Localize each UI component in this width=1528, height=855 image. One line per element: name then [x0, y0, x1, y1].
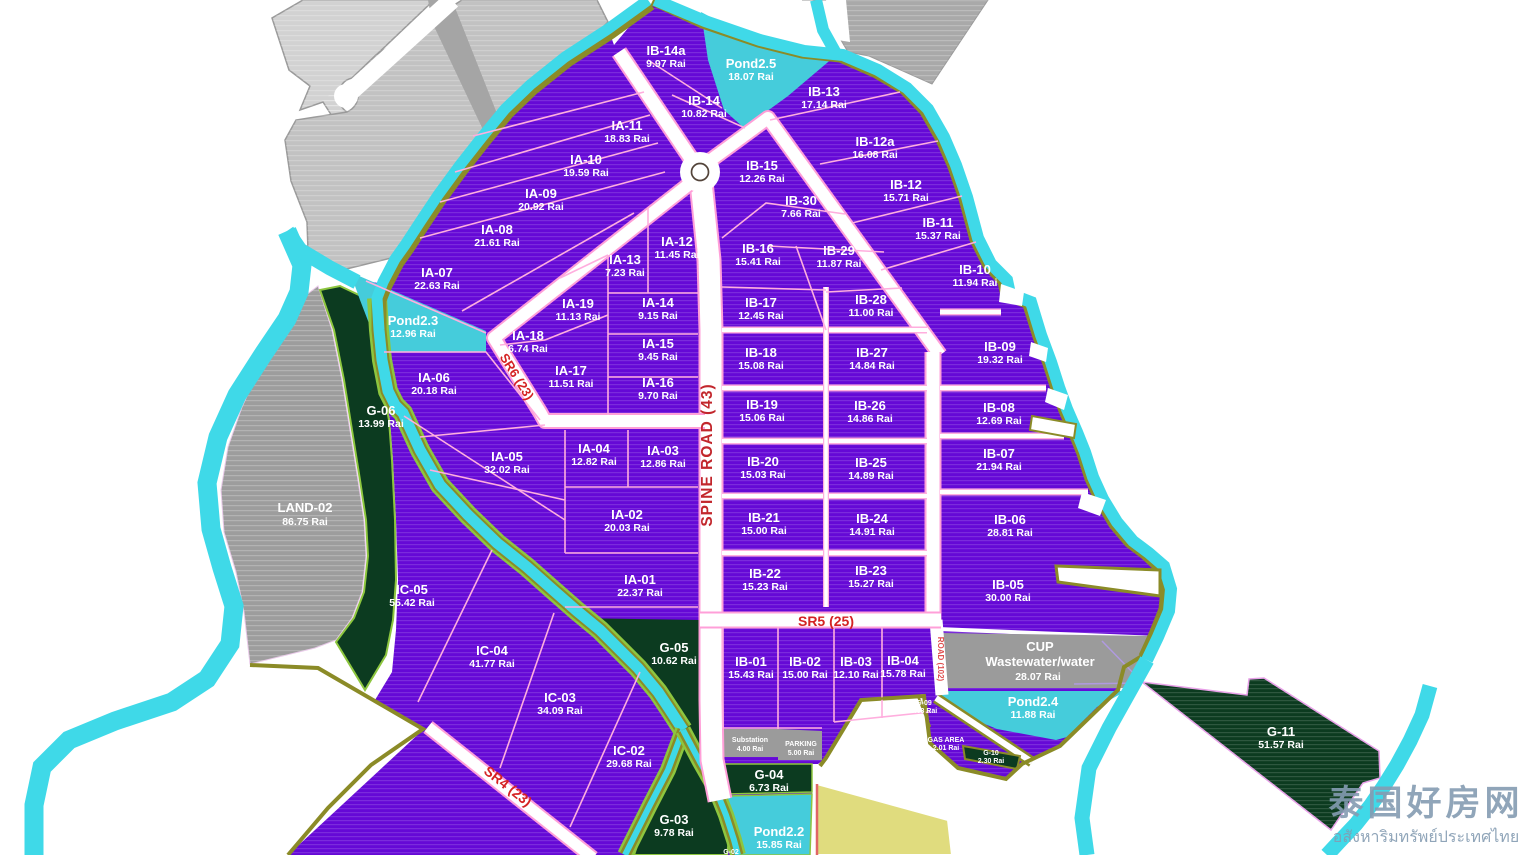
- svg-text:12.45 Rai: 12.45 Rai: [738, 310, 784, 322]
- svg-text:G-11: G-11: [1267, 724, 1295, 739]
- svg-text:IA-03: IA-03: [647, 443, 679, 458]
- svg-text:9.70 Rai: 9.70 Rai: [638, 390, 678, 402]
- svg-text:IA-06: IA-06: [418, 370, 450, 385]
- svg-text:2.30 Rai: 2.30 Rai: [978, 758, 1005, 765]
- svg-text:22.37 Rai: 22.37 Rai: [617, 587, 663, 599]
- svg-text:51.57 Rai: 51.57 Rai: [1258, 739, 1304, 751]
- svg-text:IA-04: IA-04: [578, 441, 611, 456]
- svg-text:41.77 Rai: 41.77 Rai: [469, 658, 515, 670]
- svg-text:15.00 Rai: 15.00 Rai: [741, 525, 787, 537]
- svg-text:5.00 Rai: 5.00 Rai: [788, 750, 815, 757]
- svg-text:IB-17: IB-17: [745, 295, 777, 310]
- svg-text:IA-13: IA-13: [609, 252, 641, 267]
- svg-text:IB-06: IB-06: [994, 512, 1026, 527]
- svg-text:Pond2.4: Pond2.4: [1008, 694, 1059, 709]
- svg-text:15.37 Rai: 15.37 Rai: [915, 230, 961, 242]
- svg-text:Substation: Substation: [732, 737, 768, 744]
- svg-text:G-04: G-04: [755, 767, 785, 782]
- svg-text:14.84 Rai: 14.84 Rai: [849, 360, 895, 372]
- svg-text:13.99 Rai: 13.99 Rai: [358, 418, 404, 430]
- svg-text:20.92 Rai: 20.92 Rai: [518, 201, 564, 213]
- svg-text:Pond2.3: Pond2.3: [388, 313, 439, 328]
- svg-text:86.75 Rai: 86.75 Rai: [282, 516, 328, 528]
- svg-text:IB-15: IB-15: [746, 158, 778, 173]
- svg-text:IA-11: IA-11: [611, 118, 642, 133]
- svg-text:15.08 Rai: 15.08 Rai: [738, 360, 784, 372]
- svg-text:IB-22: IB-22: [749, 566, 781, 581]
- svg-text:IB-07: IB-07: [983, 446, 1015, 461]
- svg-text:IB-01: IB-01: [735, 654, 767, 669]
- svg-text:IB-16: IB-16: [742, 241, 774, 256]
- svg-text:IB-25: IB-25: [855, 455, 887, 470]
- svg-text:32.02 Rai: 32.02 Rai: [484, 464, 530, 476]
- svg-text:28.81 Rai: 28.81 Rai: [987, 527, 1033, 539]
- svg-text:15.03 Rai: 15.03 Rai: [740, 469, 786, 481]
- svg-text:19.59 Rai: 19.59 Rai: [563, 167, 609, 179]
- svg-text:IC-04: IC-04: [476, 643, 509, 658]
- svg-text:IB-10: IB-10: [959, 262, 991, 277]
- svg-text:11.45 Rai: 11.45 Rai: [655, 249, 700, 261]
- svg-text:ROAD (102): ROAD (102): [936, 637, 945, 682]
- svg-text:IB-28: IB-28: [855, 292, 887, 307]
- svg-text:12.10 Rai: 12.10 Rai: [833, 669, 879, 681]
- svg-text:18.83 Rai: 18.83 Rai: [604, 133, 650, 145]
- svg-text:IA-10: IA-10: [570, 152, 602, 167]
- svg-text:IB-04: IB-04: [887, 653, 920, 668]
- svg-text:Pond2.5: Pond2.5: [726, 56, 777, 71]
- svg-text:CUP: CUP: [1026, 639, 1054, 654]
- svg-text:6.73 Rai: 6.73 Rai: [749, 782, 789, 794]
- svg-text:21.61 Rai: 21.61 Rai: [474, 237, 520, 249]
- svg-text:12.86 Rai: 12.86 Rai: [640, 458, 686, 470]
- svg-text:11.94 Rai: 11.94 Rai: [953, 277, 998, 289]
- svg-text:IA-01: IA-01: [624, 572, 656, 587]
- svg-text:IB-12: IB-12: [890, 177, 922, 192]
- svg-text:14.91 Rai: 14.91 Rai: [849, 526, 895, 538]
- svg-text:IB-12a: IB-12a: [855, 134, 895, 149]
- svg-text:29.68 Rai: 29.68 Rai: [606, 758, 652, 770]
- svg-text:IB-18: IB-18: [745, 345, 777, 360]
- svg-text:IB-11: IB-11: [922, 215, 953, 230]
- svg-text:7.66 Rai: 7.66 Rai: [781, 208, 821, 220]
- svg-text:16.08 Rai: 16.08 Rai: [852, 149, 898, 161]
- svg-text:34.09 Rai: 34.09 Rai: [537, 705, 583, 717]
- svg-text:15.71 Rai: 15.71 Rai: [883, 192, 929, 204]
- svg-text:12.69 Rai: 12.69 Rai: [976, 415, 1022, 427]
- svg-text:21.94 Rai: 21.94 Rai: [976, 461, 1022, 473]
- svg-text:泰国好房网: 泰国好房网: [1328, 784, 1523, 823]
- svg-text:12.82 Rai: 12.82 Rai: [571, 456, 617, 468]
- svg-text:11.00 Rai: 11.00 Rai: [849, 307, 894, 319]
- svg-text:IB-20: IB-20: [747, 454, 779, 469]
- svg-text:IB-13: IB-13: [808, 84, 840, 99]
- svg-text:20.18 Rai: 20.18 Rai: [411, 385, 457, 397]
- svg-text:G-09: G-09: [916, 700, 932, 707]
- svg-text:15.06 Rai: 15.06 Rai: [739, 412, 785, 424]
- svg-text:IB-09: IB-09: [984, 339, 1016, 354]
- svg-text:G-05: G-05: [660, 640, 689, 655]
- svg-text:IA-16: IA-16: [642, 375, 674, 390]
- svg-text:9.78 Rai: 9.78 Rai: [654, 827, 694, 839]
- svg-text:IA-18: IA-18: [512, 328, 544, 343]
- svg-text:20.03 Rai: 20.03 Rai: [604, 522, 650, 534]
- svg-text:9.97 Rai: 9.97 Rai: [646, 58, 686, 70]
- svg-text:Wastewater/water: Wastewater/water: [985, 654, 1094, 669]
- svg-text:IA-15: IA-15: [642, 336, 674, 351]
- svg-text:G-10: G-10: [983, 750, 999, 757]
- svg-text:IB-26: IB-26: [854, 398, 886, 413]
- svg-text:IA-05: IA-05: [491, 449, 523, 464]
- svg-text:IB-14: IB-14: [688, 93, 721, 108]
- svg-text:12.26 Rai: 12.26 Rai: [739, 173, 785, 185]
- svg-text:IB-03: IB-03: [840, 654, 872, 669]
- svg-text:IA-14: IA-14: [642, 295, 675, 310]
- svg-text:14.89 Rai: 14.89 Rai: [848, 470, 894, 482]
- svg-text:15.27 Rai: 15.27 Rai: [848, 578, 894, 590]
- svg-text:IC-03: IC-03: [544, 690, 576, 705]
- svg-text:10.62 Rai: 10.62 Rai: [651, 655, 697, 667]
- svg-text:15.78 Rai: 15.78 Rai: [880, 668, 926, 680]
- svg-text:G-06: G-06: [367, 403, 396, 418]
- svg-text:PARKING: PARKING: [785, 741, 817, 748]
- svg-text:19.32 Rai: 19.32 Rai: [977, 354, 1023, 366]
- svg-text:28.07 Rai: 28.07 Rai: [1015, 671, 1061, 683]
- svg-text:IB-23: IB-23: [855, 563, 887, 578]
- svg-text:IC-02: IC-02: [613, 743, 645, 758]
- svg-text:12.96 Rai: 12.96 Rai: [390, 328, 436, 340]
- svg-text:11.51 Rai: 11.51 Rai: [549, 378, 594, 390]
- svg-text:อสังหาริมทรัพย์ประเทศไทย: อสังหาริมทรัพย์ประเทศไทย: [1333, 827, 1519, 846]
- svg-text:18.07 Rai: 18.07 Rai: [728, 71, 774, 83]
- svg-text:30.00 Rai: 30.00 Rai: [985, 592, 1031, 604]
- svg-text:11.87 Rai: 11.87 Rai: [817, 258, 862, 270]
- svg-text:IB-21: IB-21: [748, 510, 780, 525]
- svg-text:IB-05: IB-05: [992, 577, 1024, 592]
- svg-text:IB-19: IB-19: [746, 397, 778, 412]
- svg-text:11.13 Rai: 11.13 Rai: [556, 311, 601, 323]
- svg-text:IA-12: IA-12: [661, 234, 693, 249]
- svg-text:9.15 Rai: 9.15 Rai: [638, 310, 678, 322]
- svg-text:IA-08: IA-08: [481, 222, 513, 237]
- svg-text:17.14 Rai: 17.14 Rai: [801, 99, 847, 111]
- svg-text:G-02: G-02: [723, 849, 739, 855]
- svg-text:LAND-02: LAND-02: [278, 500, 333, 515]
- svg-text:IA-17: IA-17: [555, 363, 587, 378]
- svg-text:2.01 Rai: 2.01 Rai: [933, 745, 960, 752]
- svg-text:G-03: G-03: [660, 812, 689, 827]
- svg-text:IB-02: IB-02: [789, 654, 821, 669]
- svg-text:0.63 Rai: 0.63 Rai: [911, 708, 938, 715]
- svg-text:15.85 Rai: 15.85 Rai: [756, 839, 802, 851]
- svg-text:9.45 Rai: 9.45 Rai: [638, 351, 678, 363]
- svg-text:7.23 Rai: 7.23 Rai: [605, 267, 645, 279]
- svg-text:IB-14a: IB-14a: [646, 43, 686, 58]
- svg-text:IB-27: IB-27: [856, 345, 888, 360]
- svg-text:IC-05: IC-05: [396, 582, 428, 597]
- svg-text:15.23 Rai: 15.23 Rai: [742, 581, 788, 593]
- svg-text:10.82 Rai: 10.82 Rai: [681, 108, 727, 120]
- svg-text:IA-09: IA-09: [525, 186, 557, 201]
- svg-text:IB-24: IB-24: [856, 511, 889, 526]
- svg-text:15.41 Rai: 15.41 Rai: [735, 256, 781, 268]
- svg-text:55.42 Rai: 55.42 Rai: [389, 597, 435, 609]
- svg-text:SR5 (25): SR5 (25): [798, 613, 854, 629]
- svg-text:Pond2.2: Pond2.2: [754, 824, 805, 839]
- svg-text:IA-02: IA-02: [611, 507, 643, 522]
- svg-text:4.00 Rai: 4.00 Rai: [737, 746, 764, 753]
- svg-text:IB-29: IB-29: [823, 243, 855, 258]
- svg-text:14.86 Rai: 14.86 Rai: [847, 413, 893, 425]
- svg-text:11.88 Rai: 11.88 Rai: [1011, 709, 1056, 721]
- svg-text:22.63 Rai: 22.63 Rai: [414, 280, 460, 292]
- svg-text:15.43 Rai: 15.43 Rai: [728, 669, 774, 681]
- svg-text:IB-30: IB-30: [785, 193, 817, 208]
- svg-text:6.74 Rai: 6.74 Rai: [508, 343, 548, 355]
- svg-text:SPINE ROAD (43): SPINE ROAD (43): [699, 383, 716, 526]
- svg-text:IB-08: IB-08: [983, 400, 1015, 415]
- svg-text:IA-19: IA-19: [562, 296, 594, 311]
- svg-text:GAS AREA: GAS AREA: [928, 737, 965, 744]
- svg-text:IA-07: IA-07: [421, 265, 453, 280]
- svg-text:15.00 Rai: 15.00 Rai: [782, 669, 828, 681]
